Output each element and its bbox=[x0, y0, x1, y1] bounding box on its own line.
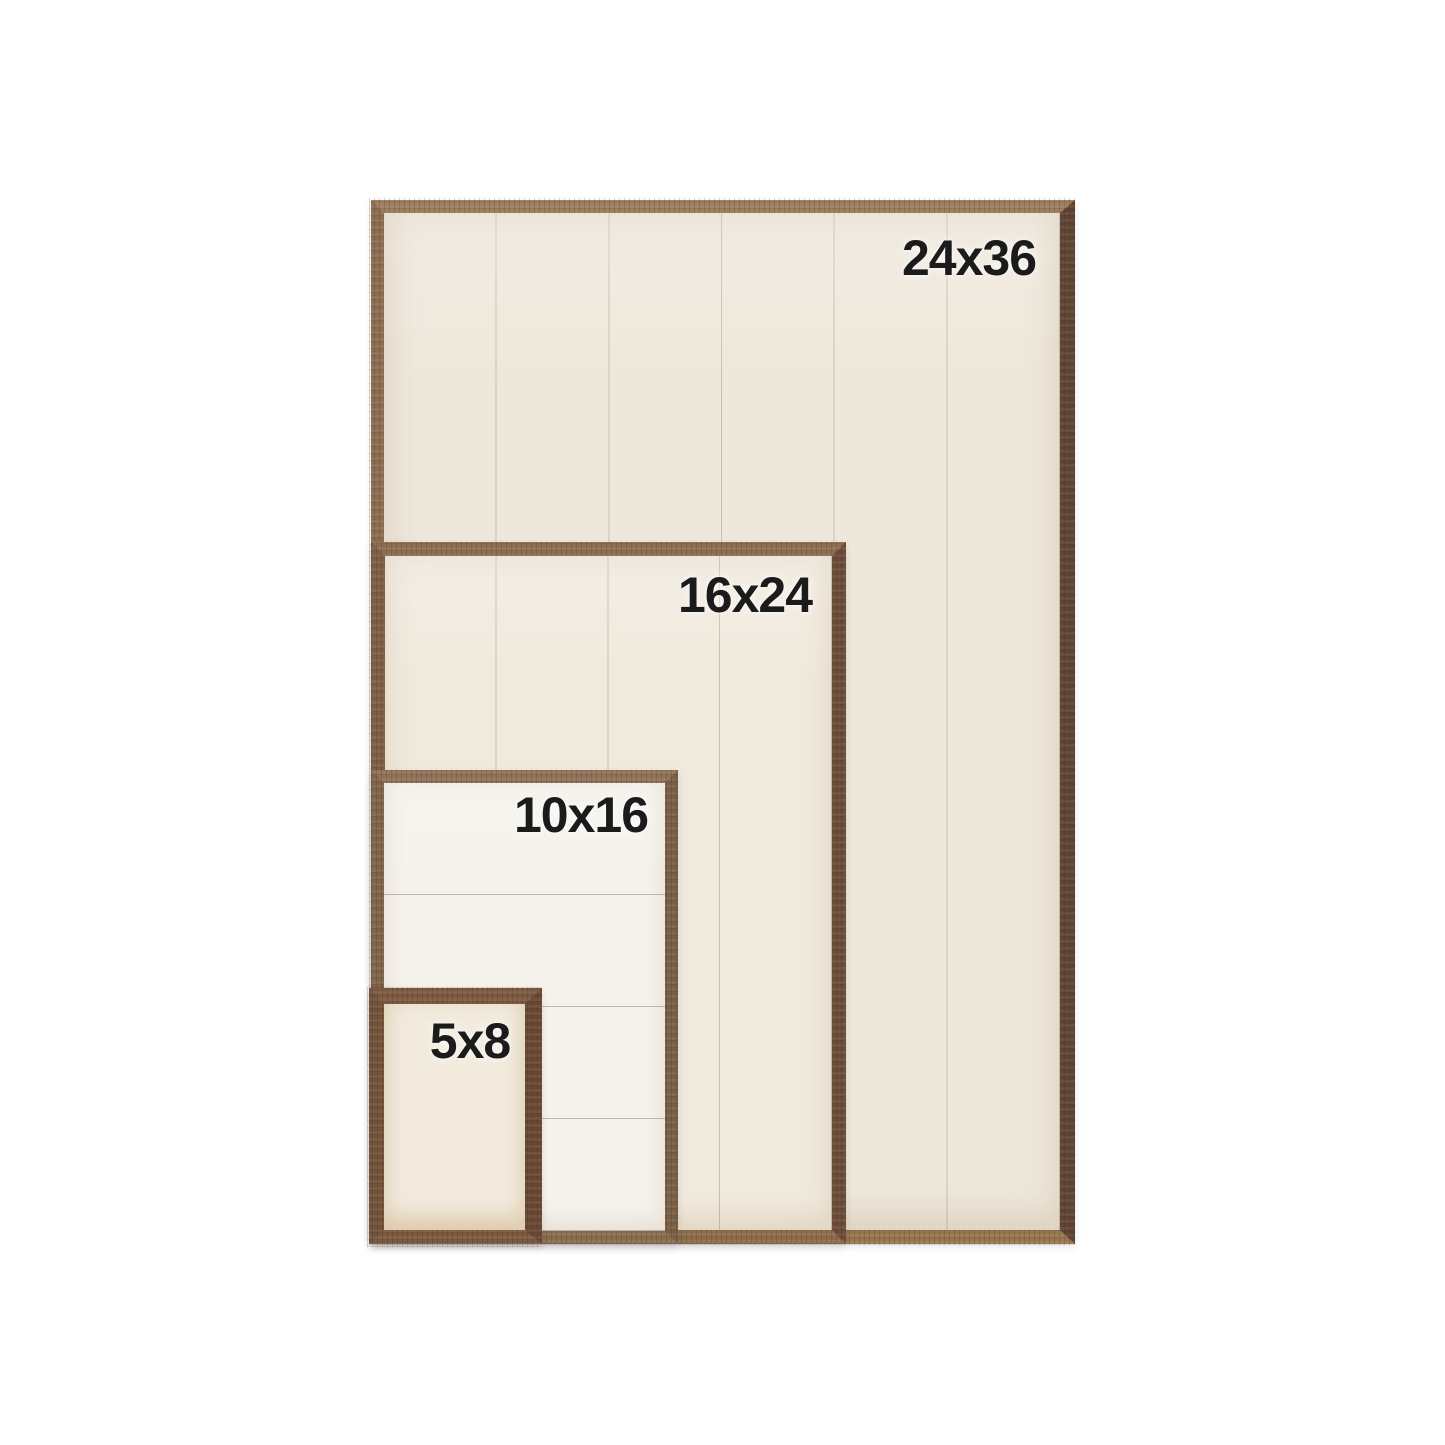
size-label-24x36: 24x36 bbox=[902, 229, 1036, 287]
size-label-10x16: 10x16 bbox=[514, 786, 648, 844]
size-label-16x24: 16x24 bbox=[678, 566, 812, 624]
frame-size-chart: 24x36 16x24 10x16 5x8 bbox=[0, 0, 1445, 1445]
size-label-5x8: 5x8 bbox=[430, 1012, 510, 1070]
